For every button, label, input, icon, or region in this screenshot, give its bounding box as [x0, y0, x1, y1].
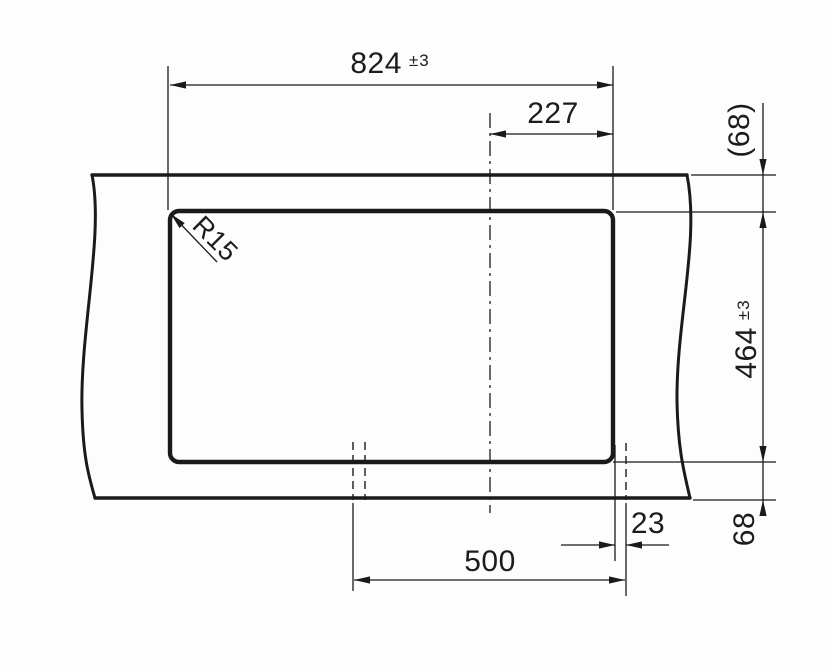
arrowheads [170, 81, 767, 583]
arrow-227-left [490, 130, 506, 137]
arrow-23-right [626, 541, 642, 548]
arrow-824-left [170, 81, 186, 88]
panel-outline [82, 175, 691, 498]
dimension-lines [170, 85, 763, 580]
arrow-227-right [597, 130, 613, 137]
arrow-464-up [759, 212, 766, 228]
dim-tolerance-cutout-height: ±3 [735, 299, 752, 320]
dim-label-23: 23 [631, 509, 665, 539]
dim-value-68-top: (68) [725, 102, 755, 157]
arrow-23-left [599, 541, 615, 548]
dim-label-overall-width: 824 ±3 [350, 49, 429, 79]
dim-value-227: 227 [527, 99, 579, 129]
dim-label-500: 500 [464, 547, 516, 577]
dim-label-68-bottom: 68 [730, 512, 760, 546]
arrow-68top-down [759, 159, 766, 175]
dim-value-68-bottom: 68 [730, 512, 760, 546]
drawing-linework [0, 0, 832, 672]
arrow-500-left [354, 576, 370, 583]
extension-lines [168, 66, 776, 596]
dim-label-68-top: (68) [725, 102, 755, 157]
arrow-464-down [759, 446, 766, 462]
dim-label-cutout-height: 464 ±3 [732, 299, 762, 378]
arrow-500-right [609, 576, 625, 583]
dim-value-cutout-height: 464 [732, 327, 762, 379]
technical-drawing-cutout-diagram: 824 ±3 227 (68) 464 ±3 68 23 500 R15 [0, 0, 832, 672]
dim-value-overall-width: 824 [350, 49, 402, 79]
dim-value-23: 23 [631, 509, 665, 539]
panel-right-break-line [677, 175, 691, 498]
arrow-824-right [597, 81, 613, 88]
dim-tolerance-overall-width: ±3 [409, 52, 430, 69]
dim-value-500: 500 [464, 547, 516, 577]
dim-label-227: 227 [527, 99, 579, 129]
panel-left-break-line [82, 175, 95, 498]
